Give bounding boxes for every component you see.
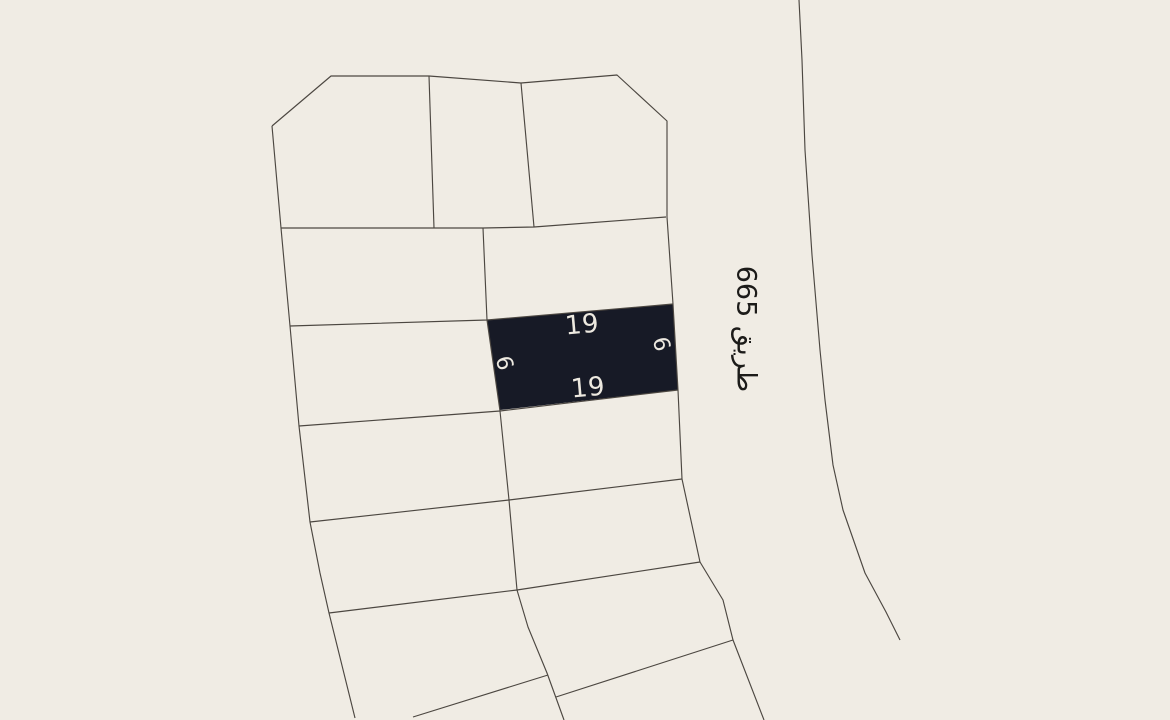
center-column-divider bbox=[483, 228, 564, 720]
selected-parcel[interactable] bbox=[487, 304, 678, 410]
parcel-map-svg bbox=[0, 0, 1170, 720]
block-right-edge bbox=[667, 217, 764, 720]
row-divider-5-left bbox=[413, 675, 548, 717]
top-block-divider-2 bbox=[521, 83, 534, 227]
row-divider-5-right bbox=[556, 640, 733, 697]
row-divider-4 bbox=[329, 562, 700, 613]
map-canvas[interactable]: 19 19 9 9 طريق 665 bbox=[0, 0, 1170, 720]
road-edge-line bbox=[799, 0, 900, 640]
top-block-bottom-edge bbox=[281, 217, 666, 228]
top-block-outline-top bbox=[272, 75, 667, 217]
block-left-edge bbox=[272, 126, 355, 718]
row-divider-3 bbox=[310, 479, 682, 522]
top-block-divider-1 bbox=[429, 76, 434, 228]
